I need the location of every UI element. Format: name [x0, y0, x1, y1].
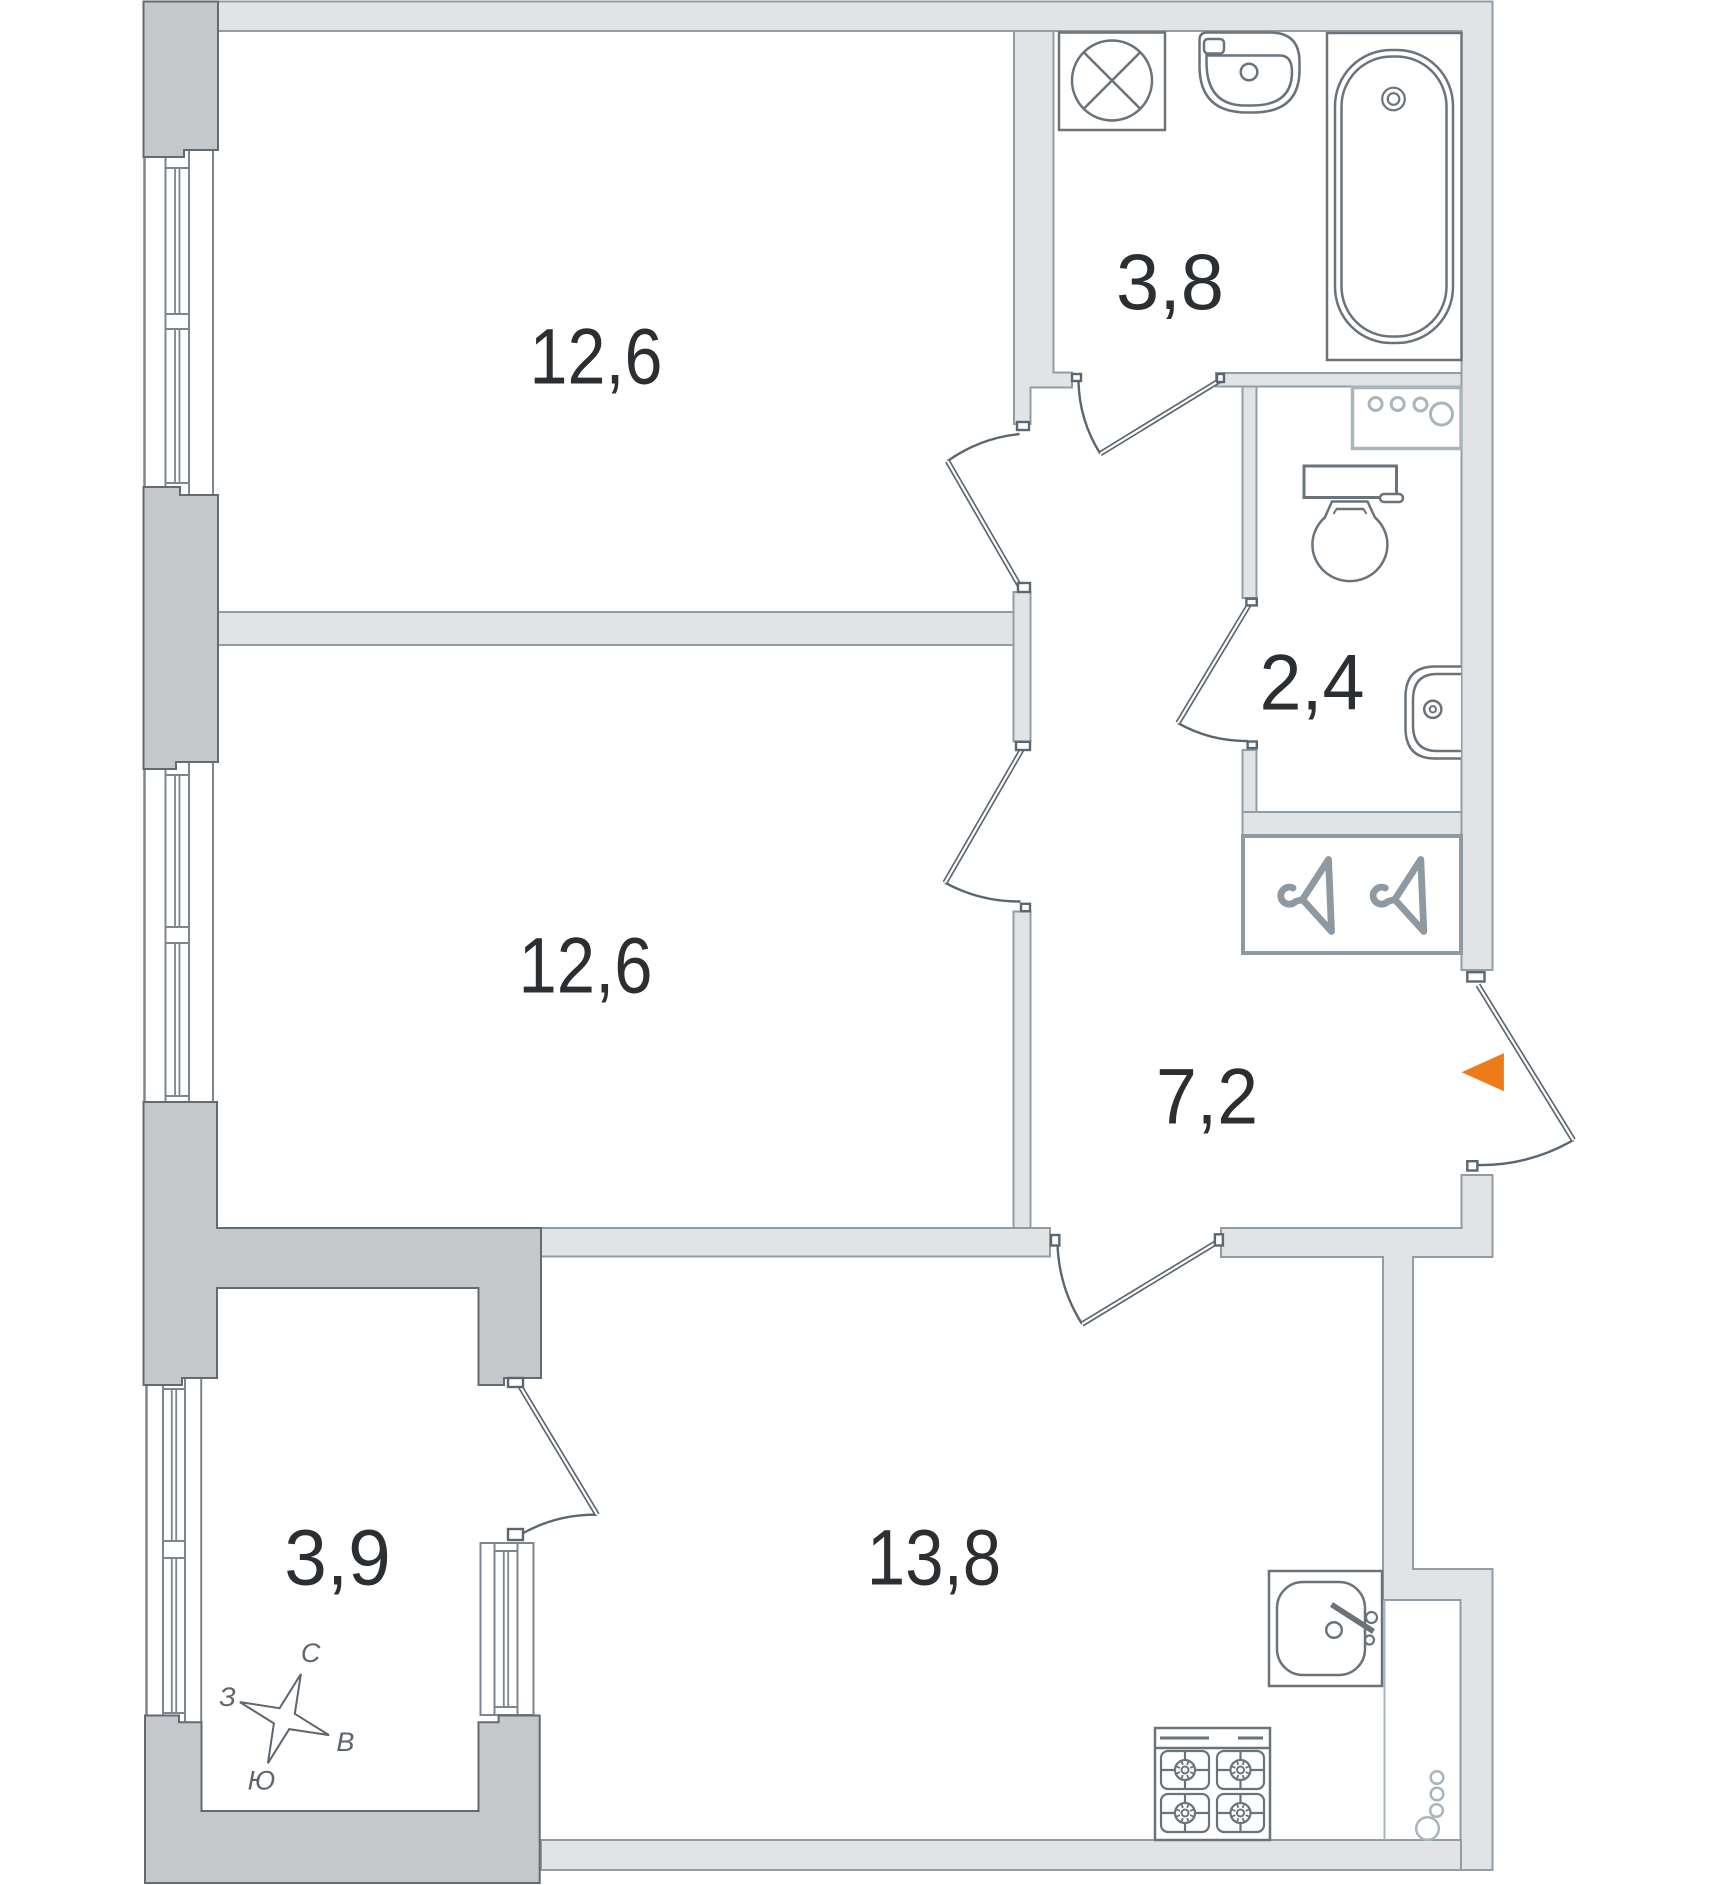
svg-text:З: З: [219, 1682, 236, 1712]
svg-text:12,6: 12,6: [530, 312, 663, 401]
svg-text:С: С: [301, 1638, 321, 1668]
svg-text:12,6: 12,6: [519, 921, 653, 1010]
svg-text:7,2: 7,2: [1156, 1052, 1258, 1141]
svg-text:3,9: 3,9: [284, 1513, 391, 1602]
svg-text:2,4: 2,4: [1260, 638, 1365, 727]
svg-text:13,8: 13,8: [867, 1513, 1002, 1602]
svg-text:Ю: Ю: [248, 1766, 276, 1796]
svg-text:3,8: 3,8: [1116, 237, 1224, 326]
svg-text:В: В: [336, 1727, 354, 1757]
